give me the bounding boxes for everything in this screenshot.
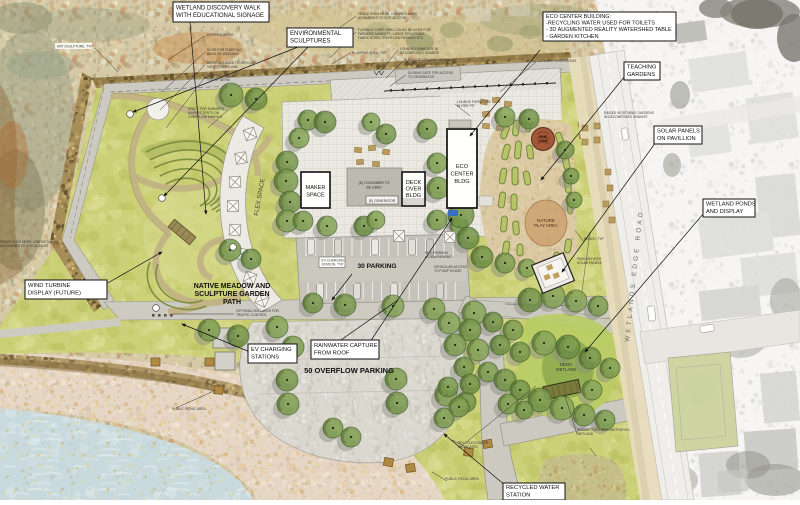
svg-text:OVER: OVER (406, 187, 422, 193)
svg-text:TO PUMP HOUSE: TO PUMP HOUSE (434, 269, 462, 273)
svg-text:DECK: DECK (406, 180, 422, 186)
svg-text:50 OVERFLOW PARKING: 50 OVERFLOW PARKING (304, 366, 394, 375)
svg-text:WETLAND: WETLAND (577, 432, 594, 436)
svg-text:PATH: PATH (223, 299, 241, 306)
svg-text:VIEW TO WETLAND: VIEW TO WETLAND (207, 65, 238, 69)
svg-text:PUBLIC PICNIC AREA: PUBLIC PICNIC AREA (172, 407, 207, 411)
svg-text:CONE: CONE (538, 139, 549, 143)
svg-text:30 PARKING: 30 PARKING (357, 263, 396, 270)
svg-text:STATION: STATION (506, 493, 530, 499)
svg-text:WETLAND DISCOVERY WALK: WETLAND DISCOVERY WALK (176, 5, 261, 11)
svg-text:WETLAND: WETLAND (556, 367, 576, 372)
svg-text:NATIVE MEADOW AND: NATIVE MEADOW AND (194, 283, 271, 290)
svg-text:(E) GENERATOR: (E) GENERATOR (369, 199, 396, 203)
svg-text:ENVIRONMENTAL: ENVIRONMENTAL (290, 31, 342, 37)
svg-text:AREA OR WEDDING: AREA OR WEDDING (207, 52, 239, 56)
svg-text:BENCH, TYP: BENCH, TYP (584, 237, 605, 241)
svg-text:GARDENS: GARDENS (627, 72, 655, 78)
svg-text:-RECYCLING WATER USED FOR TOIL: -RECYCLING WATER USED FOR TOILETS (546, 21, 655, 27)
svg-text:RAINWATER CAPTURE: RAINWATER CAPTURE (314, 343, 378, 349)
svg-text:ACCESS TO GENERATOR: ACCESS TO GENERATOR (404, 62, 445, 66)
svg-text:FABRICATION, OVERFLOW PARKING: FABRICATION, OVERFLOW PARKING ETC. (358, 36, 424, 40)
svg-text:WIND TURBINE: WIND TURBINE (28, 283, 71, 289)
svg-text:SOLAR PANELS: SOLAR PANELS (657, 129, 700, 135)
svg-text:TO GENERATOR: TO GENERATOR (408, 75, 435, 79)
svg-text:AS BARRIER TO SITE ACCESS: AS BARRIER TO SITE ACCESS (358, 16, 407, 20)
svg-text:AS BARRIER TO SITE ACCESS: AS BARRIER TO SITE ACCESS (0, 244, 49, 248)
svg-text:- GARDEN KITCHEN: - GARDEN KITCHEN (546, 34, 599, 40)
svg-text:OVERFLOW PARKING: OVERFLOW PARKING (188, 115, 223, 119)
svg-text:AND DISPLAY: AND DISPLAY (706, 209, 743, 215)
svg-text:RECYCLED WATER: RECYCLED WATER (506, 485, 559, 491)
svg-text:SPACE: SPACE (306, 193, 325, 199)
svg-text:PLAY AREA: PLAY AREA (534, 223, 558, 228)
svg-text:WITH EDUCATIONAL SIGNAGE: WITH EDUCATIONAL SIGNAGE (176, 13, 264, 19)
svg-text:EV CHARGING: EV CHARGING (251, 347, 292, 353)
svg-text:TRAFFIC CONTROL: TRAFFIC CONTROL (236, 313, 267, 317)
svg-text:DISPLAY (FUTURE): DISPLAY (FUTURE) (28, 291, 81, 297)
svg-text:FROM ROOF: FROM ROOF (314, 351, 350, 357)
svg-text:ECO CENTER BUILDING:: ECO CENTER BUILDING: (546, 14, 612, 20)
svg-text:EXISTING BERM: EXISTING BERM (207, 33, 233, 37)
svg-text:ON PAVILLION: ON PAVILLION (657, 136, 696, 142)
svg-text:TEACHING: TEACHING (627, 65, 656, 71)
svg-text:ECO: ECO (456, 164, 469, 170)
svg-text:- 3D AUGMENTED REALITY WATERSH: - 3D AUGMENTED REALITY WATERSHED TABLE (546, 27, 672, 33)
svg-text:PLANTING AREA, TYP: PLANTING AREA, TYP (352, 51, 387, 55)
svg-text:BLDG: BLDG (454, 179, 469, 185)
svg-text:IN FIRE PIT: IN FIRE PIT (457, 104, 475, 108)
svg-text:SOLAR PANELS: SOLAR PANELS (577, 261, 603, 265)
svg-text:WETLAND PONDS: WETLAND PONDS (706, 202, 756, 208)
svg-text:STATIONS: STATIONS (251, 355, 279, 361)
svg-text:SCULPTURES: SCULPTURES (290, 39, 330, 45)
svg-text:(E) CONTAINER TO: (E) CONTAINER TO (359, 181, 390, 185)
svg-text:BE USED: BE USED (367, 186, 382, 190)
svg-text:MAKER: MAKER (306, 185, 326, 191)
svg-text:PUBLIC PICNIC AREA: PUBLIC PICNIC AREA (445, 477, 480, 481)
svg-text:STATION, TYP: STATION, TYP (322, 263, 345, 267)
svg-text:SCULPTURE GARDEN: SCULPTURE GARDEN (194, 291, 269, 298)
svg-text:(2) ADA PARKING: (2) ADA PARKING (425, 255, 452, 259)
svg-text:ART SCULPTURE, TYP: ART SCULPTURE, TYP (57, 45, 93, 49)
svg-text:IN DECOMPOSED GRANITE: IN DECOMPOSED GRANITE (604, 115, 648, 119)
svg-text:CENTER: CENTER (451, 172, 474, 178)
svg-text:RELOCATED: RELOCATED (458, 445, 479, 449)
svg-text:DECOMPOSED GRANITE: DECOMPOSED GRANITE (400, 51, 440, 55)
svg-text:OUTDOOR CLASSROOM: OUTDOOR CLASSROOM (537, 59, 576, 63)
svg-text:TOP OF BERM: TOP OF BERM (207, 78, 230, 82)
